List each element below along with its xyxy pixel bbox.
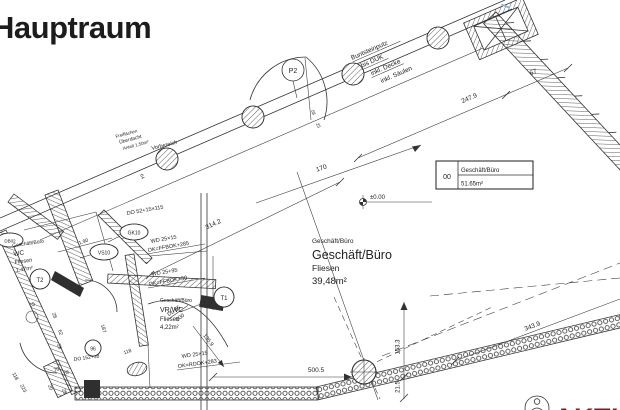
front-area-note: Freiflächen Überdacht Anteil 1,50m² bbox=[115, 126, 150, 152]
vr-room-area: 4,22m² bbox=[160, 325, 179, 331]
dim-170: 170 bbox=[256, 145, 421, 203]
column-icon bbox=[242, 106, 264, 128]
vr-room-category: Geschäft/Büro bbox=[160, 298, 192, 304]
tag-vs10: VS10 bbox=[98, 251, 110, 257]
dim-label-small: 118 bbox=[123, 348, 133, 356]
page-title: Hauptraum bbox=[0, 10, 151, 45]
door-tag-t2: T2 bbox=[36, 278, 44, 284]
wall-solid-segment bbox=[84, 380, 100, 398]
level-marker: ±0.00 bbox=[360, 195, 433, 209]
wall-note-wd3a: WD 25×15 bbox=[181, 350, 208, 360]
vr-room-name: VR/WC bbox=[160, 307, 183, 314]
dim-label-small: 62 bbox=[56, 329, 64, 337]
level-label: ±0.00 bbox=[370, 195, 386, 201]
room-stamp: 00 Geschäft/Büro 51.65m² bbox=[436, 161, 533, 189]
dim-label-small: 187 bbox=[99, 324, 107, 334]
dim-label-1533: 153.3 bbox=[396, 339, 402, 355]
dim-label-small: 25 bbox=[315, 122, 322, 129]
right-wall bbox=[484, 8, 620, 170]
wc-room-area: 1,47m² bbox=[15, 265, 33, 273]
logo: AKTI bbox=[525, 396, 619, 410]
dim-label-small: 118 bbox=[10, 372, 19, 382]
floorplan-drawing: Hauptraum P2 bbox=[0, 0, 620, 410]
toilet-fixture bbox=[126, 360, 149, 378]
dim-label-small: 64 bbox=[139, 173, 146, 180]
vr-room-floor: Fliesen bbox=[160, 317, 179, 323]
column-icon bbox=[156, 148, 178, 170]
dim-label-small: 58 bbox=[310, 109, 317, 116]
wall-note-wd3b: OK=RDOK+283 bbox=[177, 359, 217, 370]
tag-gk10: GK10 bbox=[128, 231, 141, 237]
dim-label-190: 1.90 bbox=[78, 238, 89, 247]
column-icon bbox=[427, 27, 449, 49]
main-room-area: 39,48m² bbox=[312, 276, 347, 287]
vr-room-label: Geschäft/Büro VR/WC Fliesen 4,22m² bbox=[160, 298, 192, 331]
dim-label-5005: 500.5 bbox=[308, 367, 325, 374]
facade-columns bbox=[156, 27, 449, 170]
wall-note-wd2a: WD 25+95 bbox=[151, 268, 178, 278]
main-room-category: Geschäft/Büro bbox=[312, 238, 354, 245]
p2-tag: P2 bbox=[282, 59, 304, 98]
dim-label-170: 170 bbox=[315, 163, 328, 173]
main-room-floor: Fliesen bbox=[312, 263, 340, 273]
main-room-name: Geschäft/Büro bbox=[312, 248, 392, 262]
dim-label-3439: 343.9 bbox=[524, 320, 542, 332]
tag-96: 96 bbox=[90, 347, 96, 353]
stamp-room-area: 51.65m² bbox=[461, 182, 483, 188]
logo-figure-icon bbox=[534, 399, 540, 405]
dim-vertical: 153.3 21.5 bbox=[396, 302, 409, 402]
dim-label-2479: 247.9 bbox=[461, 92, 479, 105]
wc-room-floor: Fliesen bbox=[14, 258, 32, 266]
stamp-room-name: Geschäft/Büro bbox=[461, 168, 500, 174]
p2-tag-label: P2 bbox=[289, 68, 298, 75]
floorplan-canvas: Hauptraum P2 bbox=[0, 0, 620, 410]
dim-label-small: 28 bbox=[50, 312, 58, 320]
dim-label-215: 21.5 bbox=[396, 381, 402, 393]
wall-note-do1: DO 52+15×115 bbox=[126, 205, 164, 217]
stamp-number: 00 bbox=[443, 174, 451, 181]
wc-door-arc bbox=[85, 280, 117, 312]
wc-room-label: Geschäft/Büro WC Fliesen 1,47m² bbox=[12, 239, 48, 274]
logo-text: AKTI bbox=[554, 403, 619, 410]
wc-room-name: WC bbox=[13, 250, 25, 258]
main-room-label: Geschäft/Büro Geschäft/Büro Fliesen 39,4… bbox=[312, 238, 392, 287]
dim-label-small: 223 bbox=[18, 383, 27, 393]
door-tag-t1: T1 bbox=[220, 296, 228, 302]
dim-label-small: 20 bbox=[46, 384, 54, 392]
